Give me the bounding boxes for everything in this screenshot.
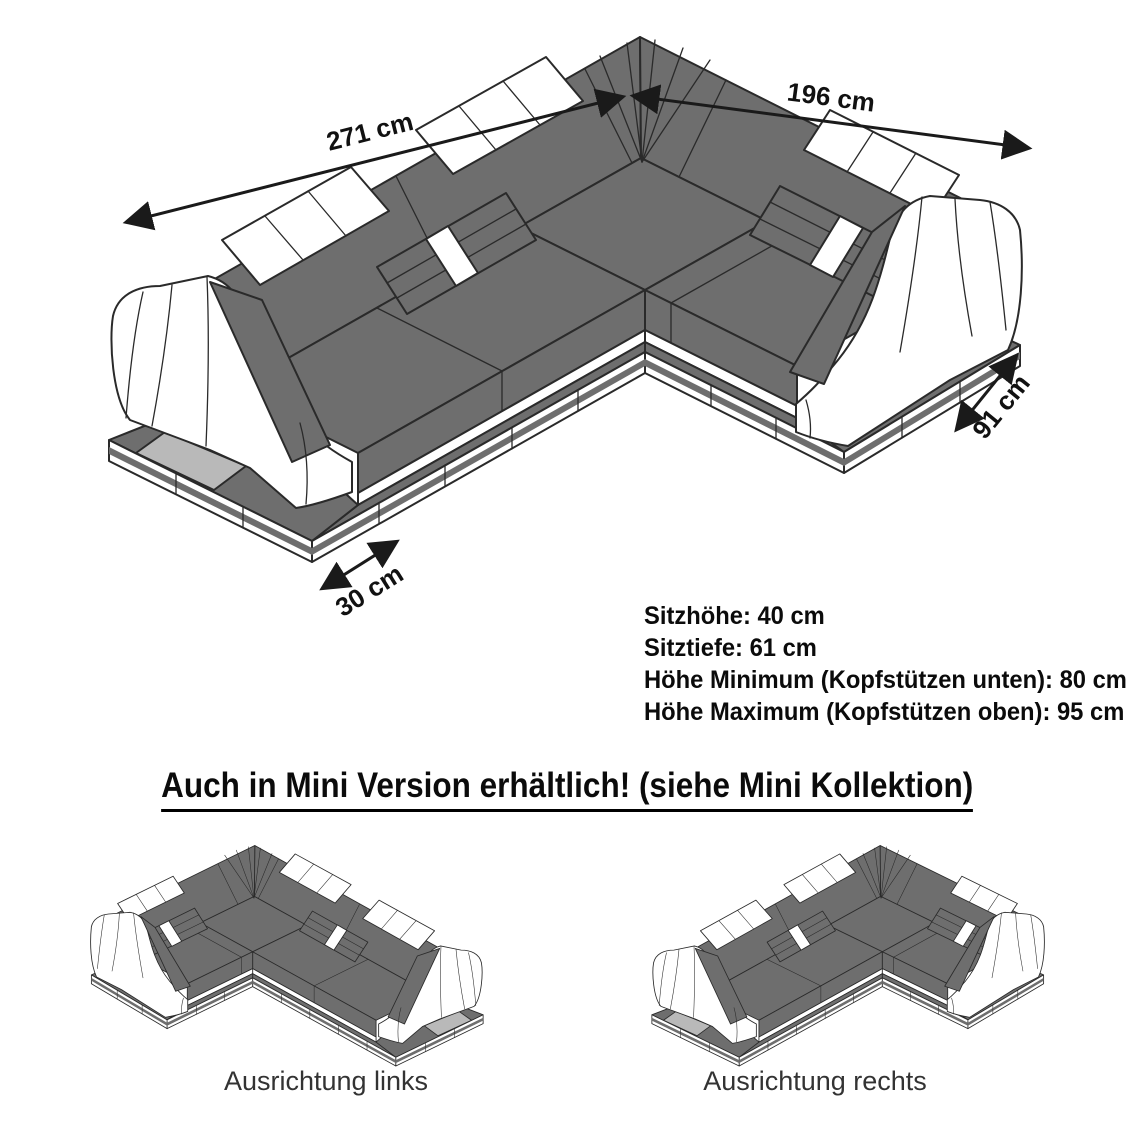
spec-sitztiefe: Sitztiefe: 61 cm — [644, 632, 1127, 664]
dimension-label-271cm: 271 cm — [323, 106, 416, 157]
main-sofa-diagram: 271 cm 196 cm 91 cm 30 cm — [0, 0, 1134, 690]
mini-sofa-rechts-drawing — [652, 846, 1045, 1067]
variant-label-links: Ausrichtung links — [156, 1066, 496, 1097]
mini-variants-drawings — [0, 812, 1134, 1077]
specs-block: Sitzhöhe: 40 cm Sitztiefe: 61 cm Höhe Mi… — [644, 600, 1127, 728]
spec-hoehe-minimum: Höhe Minimum (Kopfstützen unten): 80 cm — [644, 664, 1127, 696]
mini-version-heading: Auch in Mini Version erhältlich! (siehe … — [0, 766, 1134, 812]
mini-sofa-links-drawing — [91, 846, 484, 1067]
dimension-30cm: 30 cm — [323, 542, 408, 623]
variant-label-rechts: Ausrichtung rechts — [645, 1066, 985, 1097]
dimension-label-196cm: 196 cm — [786, 76, 877, 117]
spec-hoehe-maximum: Höhe Maximum (Kopfstützen oben): 95 cm — [644, 696, 1127, 728]
spec-sitzhoehe: Sitzhöhe: 40 cm — [644, 600, 1127, 632]
main-sofa-drawing — [109, 37, 1022, 562]
dimension-label-30cm: 30 cm — [330, 558, 408, 623]
